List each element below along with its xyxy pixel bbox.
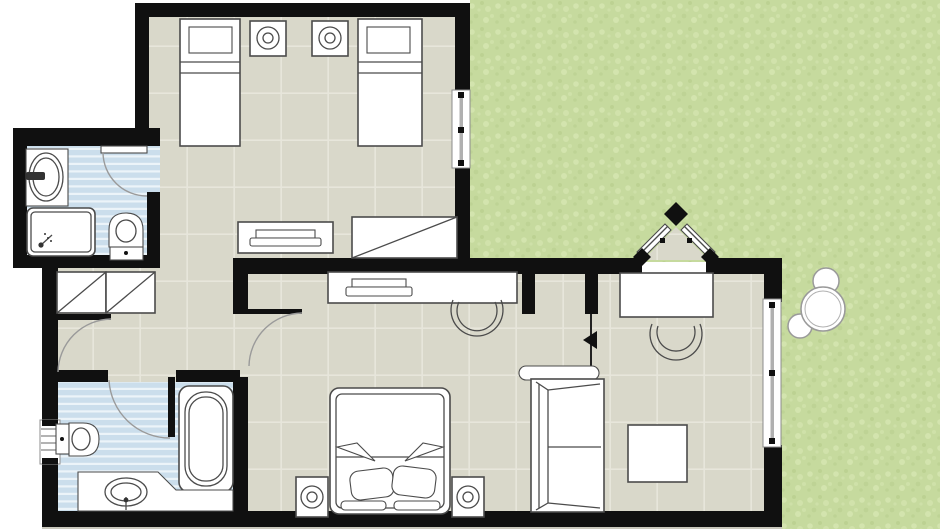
tree-crown-large [801,287,845,331]
nightstand-right [312,21,348,56]
wall-top [135,3,470,17]
single-bed-right [358,19,422,146]
tray-base [250,238,321,246]
footboard-cushion [394,501,440,510]
sofa [519,366,604,512]
desk [328,272,517,303]
tray-top [352,279,406,287]
double-bed [330,388,450,514]
toilet [56,423,99,456]
living-room-window [763,299,781,447]
tv-console [238,222,333,253]
wall-hall-living-stub [233,258,248,314]
window-cap [458,127,464,133]
wall-main-bathroom-top-right [176,370,240,382]
vent-cap [42,458,58,464]
window-cap [769,370,775,376]
single-bed-left [180,19,240,146]
wardrobe [57,272,155,313]
coffee-table [628,425,687,482]
wall-stub-a [522,274,535,314]
dining-table [620,273,713,317]
nightstand-right [452,477,484,517]
window-cap [769,438,775,444]
sofa-arm [519,366,599,380]
wall-left [42,255,58,527]
tray-base [346,287,412,296]
bathtub [179,386,233,492]
pillow [391,465,437,499]
window-cap [769,302,775,308]
window-cap [458,92,464,98]
washbasin [26,149,68,206]
wall-bathroom-living [233,377,248,512]
main-bathroom-door-leaf [168,377,175,437]
nightstand-left [296,477,328,517]
toilet [109,213,143,260]
window-cap [458,160,464,166]
wall-top-bathroom-top [13,128,160,146]
tap [26,172,45,180]
wall-top-bathroom-right-stub [147,192,160,255]
garden-lawn-upper [470,0,940,262]
wall-right-upper [764,258,782,302]
pillow [367,27,410,53]
top-bathroom-door-leaf [101,146,147,153]
floor-plan-canvas [0,0,940,529]
doorway-floor [233,314,248,377]
wall-bedroom-left [135,3,149,146]
tray-top [256,230,315,238]
hallway [57,272,155,313]
wall-main-bathroom-top-left [58,370,108,382]
floor-plan-drawing [0,0,940,529]
footboard-cushion [341,501,386,510]
twin-bedroom-window [452,90,470,168]
entrance-handle-left [660,238,665,243]
entrance-handle-right [687,238,692,243]
shower-tray [27,208,95,256]
wall-top-bathroom-left [13,128,27,268]
sofa-body [531,379,604,512]
pillow [349,467,395,501]
luggage-bench [352,217,457,258]
nightstand-left [250,21,286,56]
wall-stub-b [585,274,598,314]
top-bathroom-doorway-floor [147,146,160,192]
wall-bedroom-right-upper [455,3,470,92]
pillow [189,27,232,53]
